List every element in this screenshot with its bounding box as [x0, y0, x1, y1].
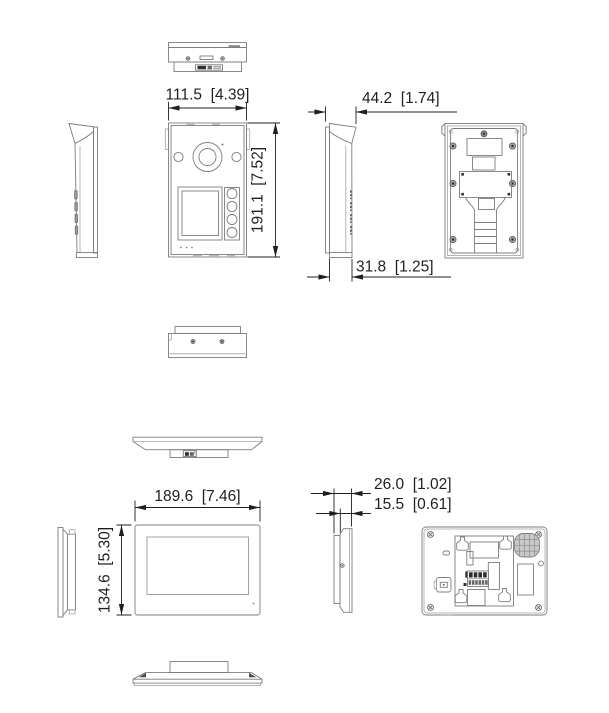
arrowhead: [352, 491, 363, 496]
door-station-depth-label: 44.2 [1.74]: [362, 90, 440, 107]
cable-channel: [466, 198, 506, 253]
illuminator-left: [174, 152, 183, 161]
illuminator-right: [232, 152, 241, 161]
wall-bracket-profile: [334, 536, 340, 604]
mounting-plate-profile: [326, 127, 330, 253]
monitor-right-side-view: [334, 529, 352, 613]
camera-lens: [199, 149, 216, 166]
door-station-left-side-view: [69, 124, 98, 258]
microphone-holes: [180, 247, 193, 249]
monitor-height-label: 134.6 [5.30]: [97, 527, 114, 613]
label-area: [518, 564, 534, 595]
door-station-bottom-view: [169, 327, 247, 358]
screw: [481, 131, 487, 137]
display-screen: [182, 191, 219, 236]
screw: [220, 340, 224, 344]
monitor-width-label: 189.6 [7.46]: [154, 488, 240, 505]
technical-drawing: 111.5 [4.39]: [0, 0, 609, 713]
arrowhead: [273, 246, 278, 257]
door-station-front-view: [165, 123, 249, 257]
screw: [191, 340, 195, 344]
rain-hood-profile: [69, 124, 94, 144]
door-station-width-dimension: 111.5 [4.39]: [166, 87, 250, 121]
hole: [539, 561, 544, 566]
door-station-body-depth-label: 31.8 [1.25]: [356, 259, 434, 276]
door-station-back-view: [442, 124, 526, 259]
monitor-back-view: [422, 527, 547, 615]
call-button: [227, 189, 237, 199]
monitor-front-view: [135, 525, 260, 615]
screw: [221, 57, 225, 61]
arrowhead: [319, 274, 330, 279]
door-station-width-label: 111.5 [4.39]: [166, 87, 250, 104]
display-panel: [178, 187, 222, 240]
call-button: [227, 215, 237, 225]
arrowhead: [273, 123, 278, 134]
door-station-height-dimension: 191.1 [7.52]: [248, 123, 281, 257]
indoor-monitor-drawing: 189.6 [7.46] 134.6 [5.30]: [58, 437, 547, 685]
camera-lens-ring: [193, 143, 222, 172]
dimension-drawing-page: 111.5 [4.39]: [0, 0, 609, 713]
door-station-top-view: [169, 43, 247, 72]
camera-module-box: [467, 139, 502, 156]
terminal-block: [465, 571, 488, 587]
mounting-plate-profile: [94, 127, 98, 253]
screw: [340, 564, 344, 568]
arrowhead: [169, 105, 180, 110]
arrowhead: [352, 511, 363, 516]
card-slot-cover: [434, 578, 451, 593]
arrowhead: [236, 105, 247, 110]
door-station-depth-dimension: 44.2 [1.74]: [308, 90, 457, 124]
arrowhead: [119, 525, 124, 536]
wall-bracket: [170, 450, 228, 458]
speaker-grille: [515, 534, 540, 558]
microphone-hole: [253, 603, 255, 605]
cable-connector: [183, 451, 196, 457]
top-slot: [200, 56, 213, 60]
cable-connector: [196, 65, 223, 70]
monitor-height-dimension: 134.6 [5.30]: [97, 525, 132, 615]
call-button: [227, 228, 237, 238]
monitor-left-side-view: [58, 528, 76, 618]
touch-screen: [147, 537, 249, 595]
indicator-dot: [222, 144, 224, 146]
wall-bracket: [170, 662, 228, 673]
arrowhead: [323, 491, 334, 496]
monitor-body-depth-label: 15.5 [0.61]: [374, 496, 452, 513]
monitor-top-view: [133, 437, 262, 457]
arrowhead: [329, 511, 340, 516]
screw: [186, 57, 190, 61]
arrowhead: [119, 604, 124, 615]
monitor-bottom-view: [133, 662, 262, 686]
door-station-right-side-view: [326, 124, 357, 258]
monitor-depth-label: 26.0 [1.02]: [374, 476, 452, 493]
rain-hood-profile: [330, 124, 357, 144]
label-sticker: [229, 45, 241, 47]
door-station-drawing: 111.5 [4.39]: [69, 43, 526, 358]
led-slot: [443, 551, 450, 555]
arrowhead: [135, 505, 146, 510]
arrowhead: [315, 109, 326, 114]
monitor-width-dimension: 189.6 [7.46]: [135, 488, 260, 522]
rear-panel: [460, 172, 512, 198]
arrowhead: [356, 109, 367, 114]
door-station-height-label: 191.1 [7.52]: [250, 147, 267, 233]
call-button: [227, 202, 237, 212]
door-station-body-depth-dimension: 31.8 [1.25]: [307, 259, 451, 282]
keyhole-mount-slots: [455, 536, 511, 603]
arrowhead: [249, 505, 260, 510]
